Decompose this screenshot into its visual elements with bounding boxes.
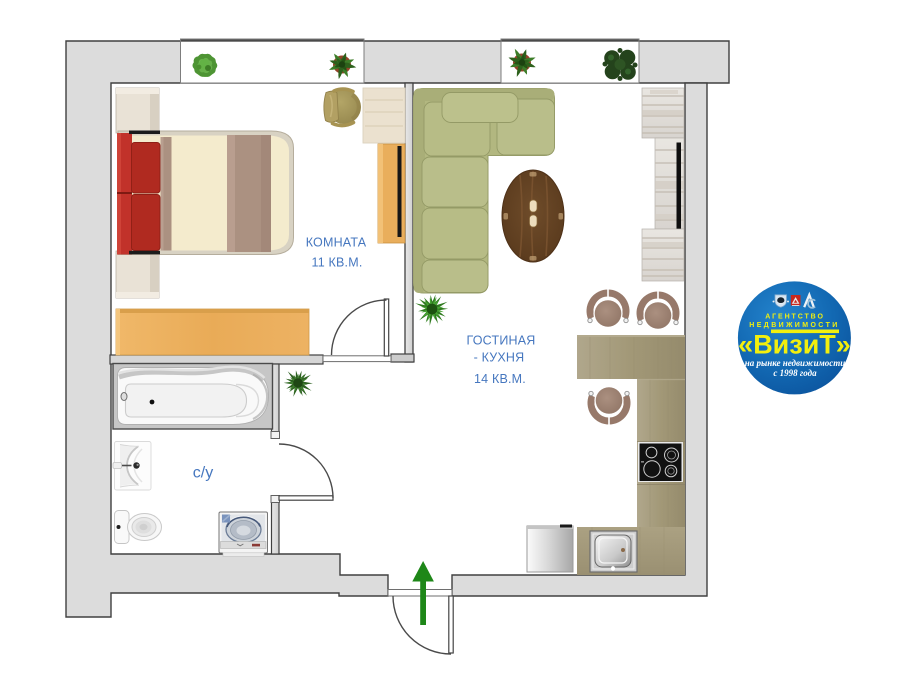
svg-text:КОМНАТА: КОМНАТА	[306, 236, 367, 250]
svg-text:«ВизиТ»: «ВизиТ»	[738, 330, 851, 360]
svg-text:на рынке недвижимости: на рынке недвижимости	[745, 358, 846, 368]
svg-text:- КУХНЯ: - КУХНЯ	[474, 351, 525, 365]
svg-text:АГЕНТСТВО: АГЕНТСТВО	[765, 314, 825, 321]
svg-text:НЕДВИЖИМОСТИ: НЕДВИЖИМОСТИ	[749, 322, 839, 329]
svg-text:с 1998 года: с 1998 года	[773, 368, 817, 378]
svg-text:ГОСТИНАЯ: ГОСТИНАЯ	[466, 334, 535, 348]
svg-text:с/у: с/у	[193, 465, 213, 482]
svg-text:11 КВ.М.: 11 КВ.М.	[311, 256, 362, 270]
svg-text:14 КВ.М.: 14 КВ.М.	[474, 372, 526, 386]
